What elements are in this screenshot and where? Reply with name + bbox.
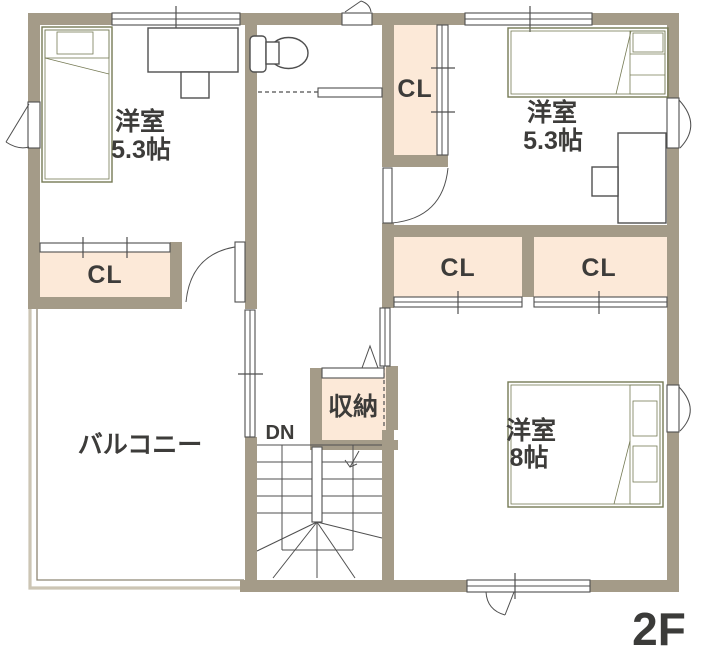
closet-mid-right-label: CL [581, 254, 616, 282]
stair-rail [312, 447, 322, 522]
floor-label: 2F [632, 603, 686, 655]
door-bedroom-ne [383, 168, 448, 223]
closet-mid-left-label: CL [440, 254, 475, 282]
floor-plan: 洋室 5.3帖 洋室 5.3帖 洋室 8帖 バルコニー 収納 CL CL CL … [0, 0, 715, 655]
folding-door-storage [322, 346, 384, 378]
bedroom-nw-size-label: 5.3帖 [111, 136, 171, 164]
closet-nw-label: CL [87, 261, 122, 289]
storage-label: 収納 [328, 392, 378, 421]
floor-plan-drawing: 洋室 5.3帖 洋室 5.3帖 洋室 8帖 バルコニー 収納 CL CL CL … [0, 0, 715, 655]
bedroom-ne-type-label: 洋室 [527, 98, 577, 127]
sliding-door-toilet [258, 88, 382, 97]
stairs [257, 445, 382, 578]
toilet-icon [250, 36, 308, 72]
casement-window-se-right [667, 385, 690, 432]
door-nw-balcony [186, 242, 245, 302]
window-balcony-hall [238, 310, 263, 437]
stairs-dn-label: DN [266, 422, 295, 444]
window-se-bottom [467, 573, 590, 615]
bedroom-ne-size-label: 5.3帖 [523, 127, 583, 155]
bed-nw [42, 27, 112, 182]
casement-window-left [6, 102, 40, 148]
stair-direction-arrow [345, 451, 359, 467]
bedroom-nw-type-label: 洋室 [115, 107, 165, 136]
bed-ne [508, 28, 668, 97]
desk-ne [592, 133, 666, 223]
balcony-label: バルコニー [78, 431, 203, 459]
casement-window-ne-right [667, 98, 691, 148]
desk-nw [148, 28, 238, 98]
bedroom-se-type-label: 洋室 [506, 416, 556, 445]
closet-hall-label: CL [397, 75, 432, 103]
bedroom-se-size-label: 8帖 [510, 444, 549, 472]
casement-window-top [342, 1, 372, 25]
